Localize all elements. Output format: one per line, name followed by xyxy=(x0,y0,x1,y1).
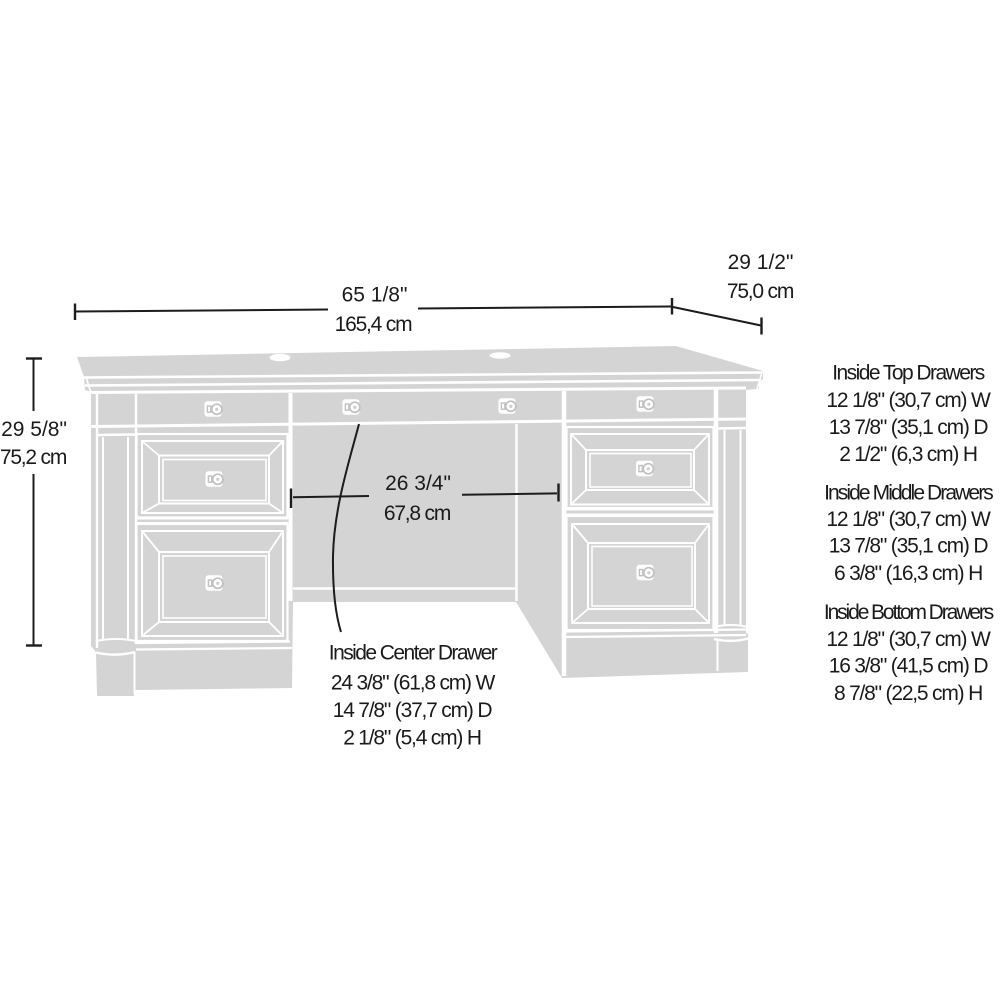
svg-text:13 7/8" (35,1 cm) D: 13 7/8" (35,1 cm) D xyxy=(829,535,989,558)
svg-text:75,0 cm: 75,0 cm xyxy=(727,280,794,303)
svg-text:29 5/8": 29 5/8" xyxy=(1,418,67,441)
svg-text:Inside Middle Drawers: Inside Middle Drawers xyxy=(824,482,993,505)
svg-text:75,2 cm: 75,2 cm xyxy=(0,446,67,469)
svg-text:12 1/8" (30,7 cm) W: 12 1/8" (30,7 cm) W xyxy=(826,508,991,531)
svg-text:12 1/8" (30,7 cm) W: 12 1/8" (30,7 cm) W xyxy=(826,389,991,412)
svg-text:8 7/8" (22,5 cm) H: 8 7/8" (22,5 cm) H xyxy=(834,682,982,705)
svg-text:29 1/2": 29 1/2" xyxy=(728,251,794,274)
svg-text:12 1/8" (30,7 cm) W: 12 1/8" (30,7 cm) W xyxy=(826,628,991,651)
svg-text:Inside Bottom Drawers: Inside Bottom Drawers xyxy=(824,601,994,624)
svg-text:65 1/8": 65 1/8" xyxy=(342,284,408,307)
svg-text:165,4 cm: 165,4 cm xyxy=(335,313,412,336)
svg-text:24 3/8" (61,8 cm) W: 24 3/8" (61,8 cm) W xyxy=(331,672,496,695)
svg-text:67,8 cm: 67,8 cm xyxy=(384,502,451,525)
svg-text:13 7/8" (35,1 cm) D: 13 7/8" (35,1 cm) D xyxy=(829,416,989,439)
svg-text:16 3/8" (41,5 cm) D: 16 3/8" (41,5 cm) D xyxy=(829,655,989,678)
svg-text:6 3/8" (16,3 cm) H: 6 3/8" (16,3 cm) H xyxy=(834,562,982,585)
svg-text:2 1/8" (5,4 cm) H: 2 1/8" (5,4 cm) H xyxy=(343,727,481,750)
svg-text:26 3/4": 26 3/4" xyxy=(385,472,451,495)
svg-text:14 7/8" (37,7 cm) D: 14 7/8" (37,7 cm) D xyxy=(333,699,493,722)
svg-text:Inside Top Drawers: Inside Top Drawers xyxy=(832,362,985,385)
svg-text:Inside Center Drawer: Inside Center Drawer xyxy=(329,642,498,665)
svg-text:2 1/2" (6,3 cm) H: 2 1/2" (6,3 cm) H xyxy=(839,443,977,466)
